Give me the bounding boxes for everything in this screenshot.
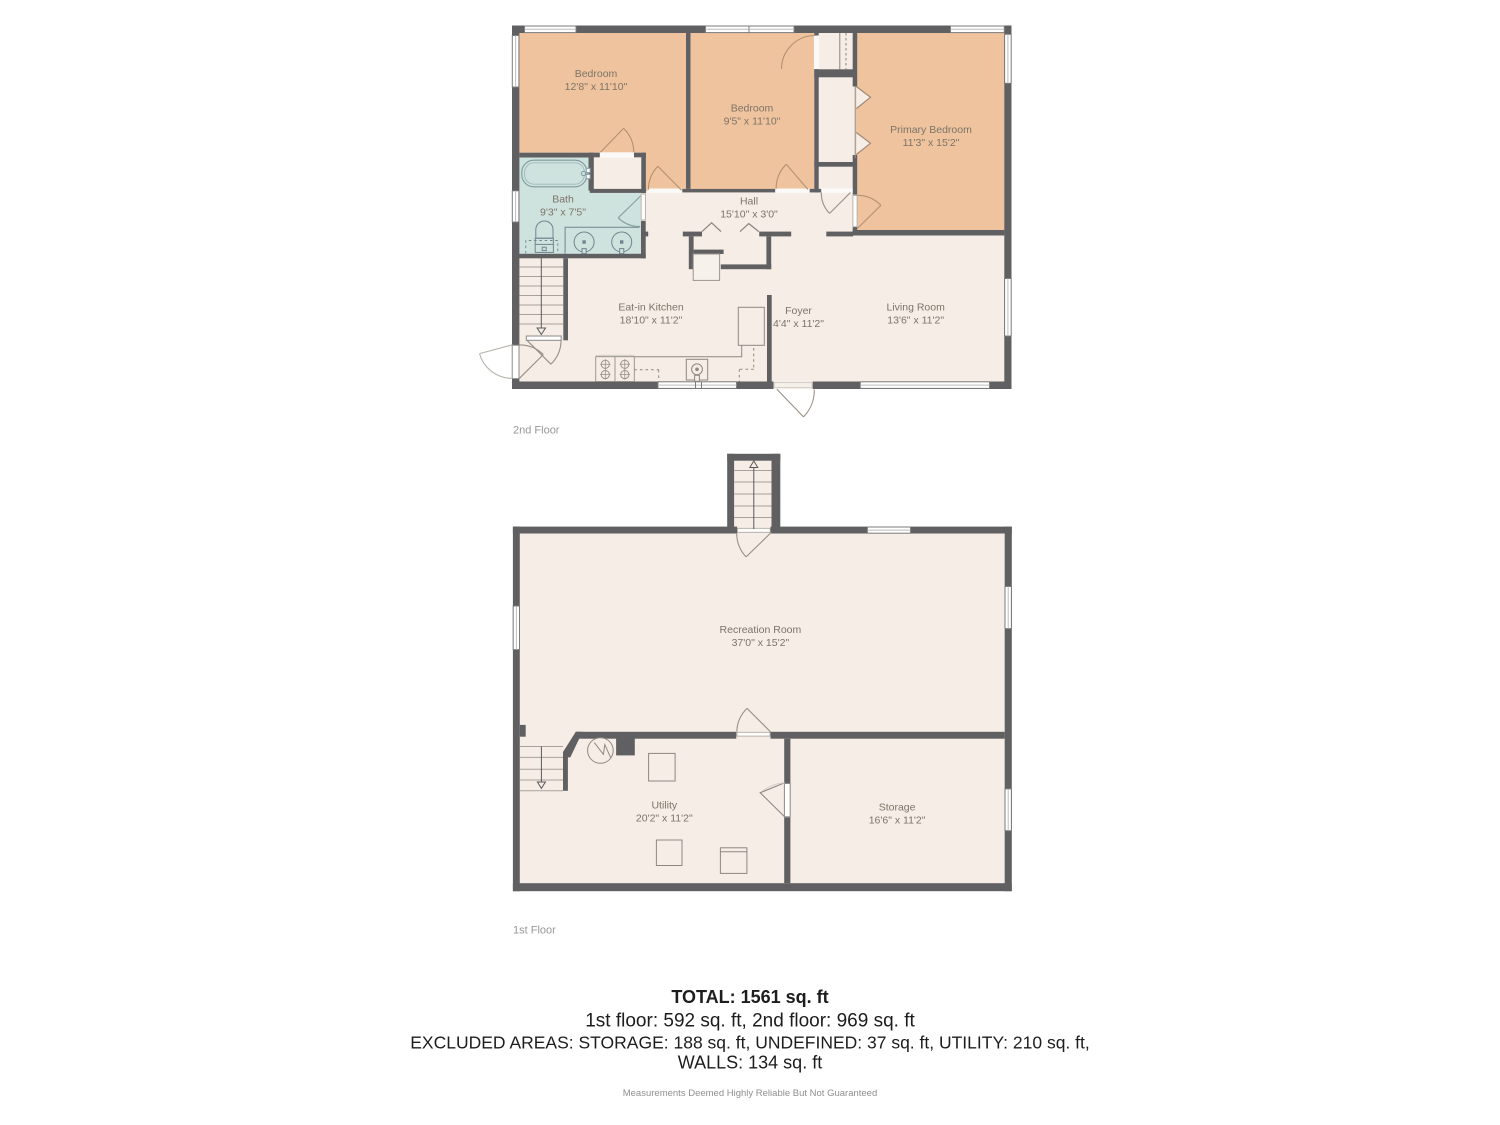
svg-text:9'5" x 11'10": 9'5" x 11'10" [724,115,781,127]
svg-text:18'10" x 11'2": 18'10" x 11'2" [620,314,683,326]
svg-text:Primary Bedroom: Primary Bedroom [890,124,972,136]
svg-text:1st floor: 592 sq. ft, 2nd flo: 1st floor: 592 sq. ft, 2nd floor: 969 sq… [585,1011,915,1032]
svg-text:13'6" x 11'2": 13'6" x 11'2" [887,314,944,326]
svg-text:Eat-in Kitchen: Eat-in Kitchen [618,301,684,313]
svg-text:20'2" x 11'2": 20'2" x 11'2" [636,812,693,824]
svg-text:Storage: Storage [879,801,916,813]
svg-text:12'8" x 11'10": 12'8" x 11'10" [565,81,628,93]
svg-text:16'6" x 11'2": 16'6" x 11'2" [869,814,926,826]
svg-text:WALLS: 134 sq. ft: WALLS: 134 sq. ft [678,1053,822,1073]
svg-text:9'3" x 7'5": 9'3" x 7'5" [540,207,586,219]
svg-text:15'10" x 3'0": 15'10" x 3'0" [720,209,778,221]
svg-text:Recreation Room: Recreation Room [720,624,802,636]
svg-text:EXCLUDED AREAS: STORAGE: 188 s: EXCLUDED AREAS: STORAGE: 188 sq. ft, UND… [410,1033,1090,1053]
svg-text:11'3" x 15'2": 11'3" x 15'2" [903,137,960,149]
svg-text:Measurements Deemed Highly Rel: Measurements Deemed Highly Reliable But … [623,1088,878,1099]
svg-text:4'4" x 11'2": 4'4" x 11'2" [773,318,824,330]
svg-text:2nd Floor: 2nd Floor [513,425,560,437]
svg-text:Foyer: Foyer [785,305,812,317]
svg-text:TOTAL: 1561 sq. ft: TOTAL: 1561 sq. ft [671,987,828,1007]
svg-text:Bath: Bath [552,194,574,206]
svg-text:Bedroom: Bedroom [575,68,618,80]
svg-text:1st Floor: 1st Floor [513,925,556,937]
svg-text:Living Room: Living Room [887,301,946,313]
svg-text:37'0" x 15'2": 37'0" x 15'2" [732,637,790,649]
svg-text:Bedroom: Bedroom [731,102,774,114]
svg-text:Utility: Utility [651,799,677,811]
svg-text:Hall: Hall [740,196,758,208]
